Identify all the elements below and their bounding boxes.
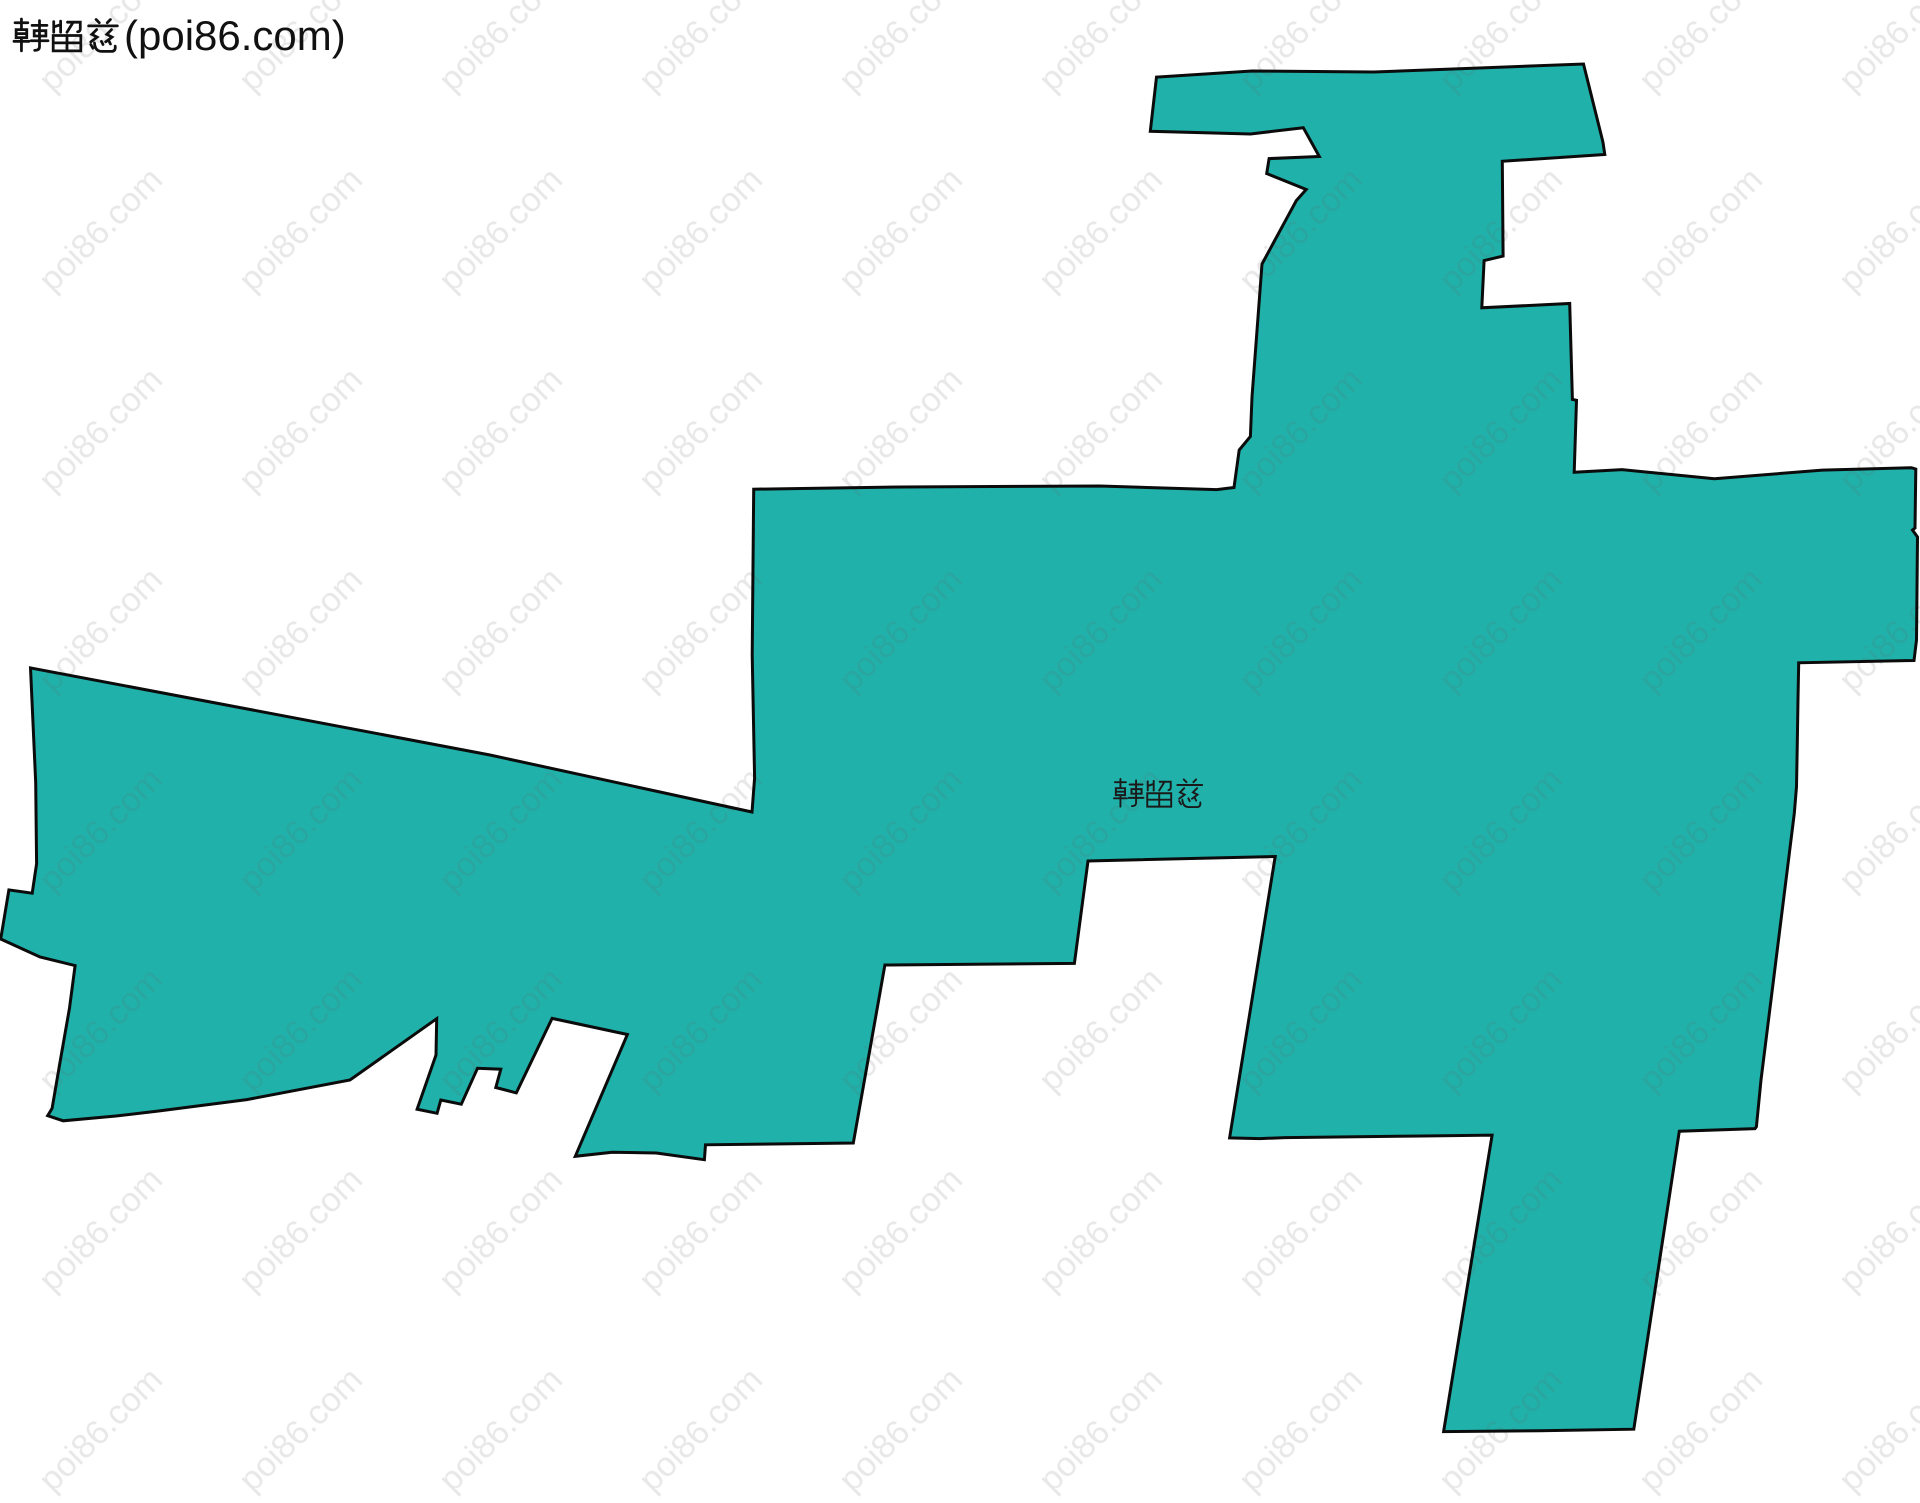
svg-text:(poi86.com): (poi86.com) — [124, 12, 346, 59]
